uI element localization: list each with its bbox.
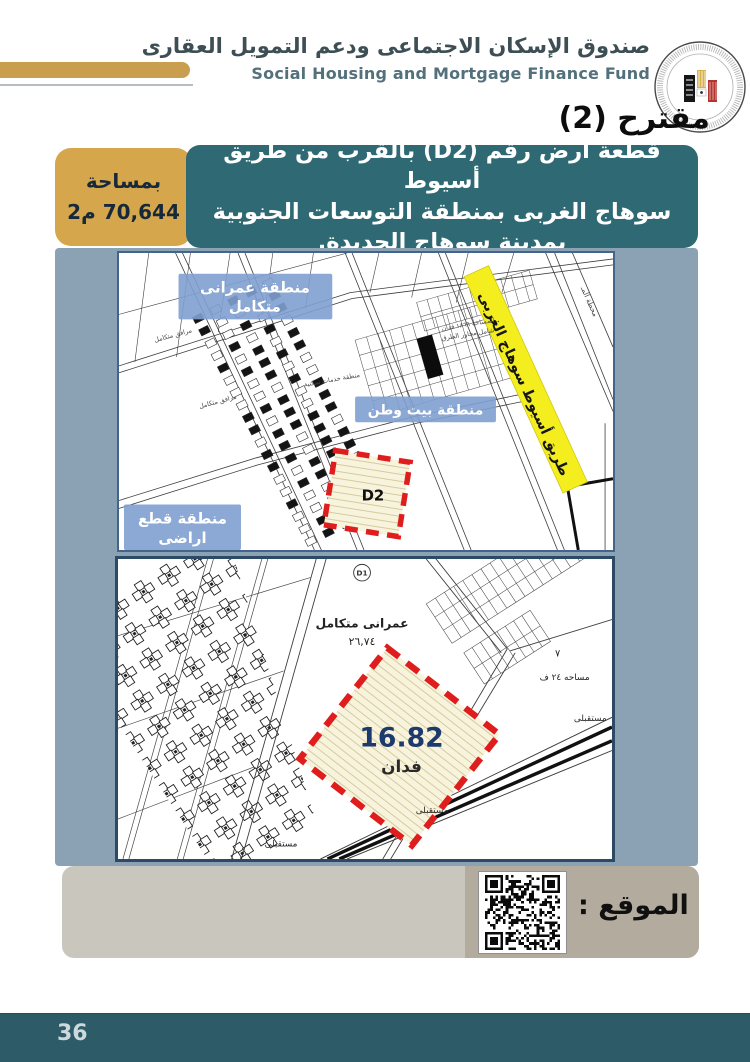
label-land-plots: منطقة قطع اراضى (124, 504, 241, 550)
svg-text:منطقة بيت وطن: منطقة بيت وطن (368, 402, 484, 418)
site-map-overview: طريق أسيوط سوهاج الغربى D2 مرافق متكامل … (117, 251, 615, 552)
qr-code-icon (478, 871, 567, 954)
highway-band: طريق أسيوط سوهاج الغربى (464, 266, 587, 493)
area-label: بمساحة (86, 166, 161, 197)
svg-text:منطقة عمرانى: منطقة عمرانى (200, 279, 310, 297)
svg-text:مرافق متكامل: مرافق متكامل (153, 326, 192, 344)
area-badge: بمساحة 70,644 م2 (55, 148, 192, 246)
footer-bar: 36 (0, 1013, 750, 1062)
document-page: صندوق الإسكان الاجتماعى ودعم التمويل الع… (0, 0, 750, 1062)
plot-area-unit: فدان (381, 756, 422, 776)
site-map-detail: 16.82 فدان D1 عمرانى متكامل ٢٦,٧٤ ٧ مساح… (115, 556, 615, 862)
area-value: 70,644 م2 (67, 197, 180, 228)
map1-boundary-corner (567, 479, 613, 550)
svg-text:محطة المـ: محطة المـ (578, 284, 600, 318)
svg-text:مساحه ٢٤ ف: مساحه ٢٤ ف (540, 673, 590, 683)
svg-text:D1: D1 (356, 569, 367, 578)
plot-d2-code: D2 (362, 487, 385, 505)
header-divider (0, 84, 193, 86)
plot-d2-outline: D2 (324, 451, 410, 537)
svg-text:٢٦,٧٤: ٢٦,٧٤ (349, 635, 376, 648)
page-number: 36 (57, 1021, 88, 1046)
plot-area-value: 16.82 (359, 723, 443, 754)
svg-text:اراضى: اراضى (158, 529, 206, 547)
svg-text:٧: ٧ (555, 649, 560, 660)
svg-text:مرافق متكامل: مرافق متكامل (198, 393, 237, 411)
description-line-2: سوهاج الغربى بمنطقة التوسعات الجنوبية (213, 197, 672, 227)
svg-text:مستقبلى: مستقبلى (574, 714, 607, 724)
header-gold-bar (0, 62, 190, 78)
label-urban-area: منطقة عمرانى متكامل (179, 274, 333, 320)
map2-grid-upper-right (426, 559, 597, 643)
description-line-1: قطعة أرض رقم (D2) بالقرب من طريق أسيوط (186, 136, 698, 197)
svg-text:مستقبلى: مستقبلى (265, 839, 298, 849)
proposal-title: مقترح (2) (559, 101, 710, 136)
location-label: الموقع : (578, 890, 689, 921)
plot-d1-marker: D1 (354, 564, 371, 581)
svg-text:مستقبلى: مستقبلى (416, 806, 449, 816)
plot-1682-outline: 16.82 فدان (300, 648, 500, 846)
plot-description: قطعة أرض رقم (D2) بالقرب من طريق أسيوط س… (186, 145, 698, 248)
org-name-english: Social Housing and Mortgage Finance Fund (251, 64, 650, 83)
label-beit-watan: منطقة بيت وطن (355, 397, 496, 423)
org-name-arabic: صندوق الإسكان الاجتماعى ودعم التمويل الع… (142, 34, 650, 58)
svg-text:عمرانى متكامل: عمرانى متكامل (315, 616, 408, 630)
svg-text:منطقة قطع: منطقة قطع (138, 509, 227, 527)
location-bar: الموقع : (62, 866, 699, 958)
svg-text:متكامل: متكامل (229, 297, 281, 315)
